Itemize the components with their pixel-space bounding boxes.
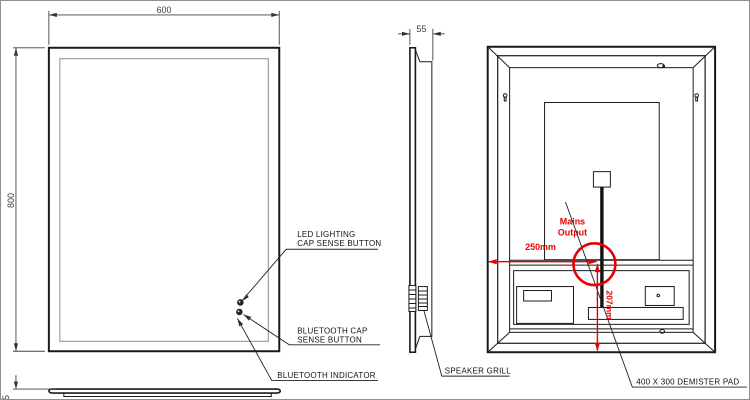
keyhole-hanger-left [503, 94, 507, 101]
arrowhead [14, 382, 18, 389]
dim-thickness-text: 5 [1, 395, 11, 399]
miter-bottom-right [693, 332, 715, 352]
back-view: 400 X 300 DEMISTER PAD [488, 47, 747, 387]
dim-207mm-text: 207mm [604, 291, 614, 320]
callout-led-lighting: LED LIGHTING CAP SENSE BUTTON [241, 230, 381, 302]
arrowhead-bottom [595, 343, 600, 352]
driver-box [517, 287, 574, 324]
leader-line [241, 249, 378, 301]
miter-top-right [693, 47, 715, 68]
drawing-canvas: 600 800 LED LIGHTING CAP SENSE BUTTON B [0, 0, 750, 400]
dim-depth-text: 55 [416, 24, 426, 34]
driver-box-window [524, 291, 552, 301]
label-led-line2: CAP SENSE BUTTON [297, 239, 381, 248]
arrowhead-right [271, 13, 279, 17]
profile-bar [49, 389, 280, 393]
mains-highlight-circle [573, 243, 615, 285]
button-highlight [238, 310, 240, 312]
label-speaker-grill: SPEAKER GRILL [445, 367, 511, 376]
leader-arrowhead [241, 294, 248, 301]
dim-height-text: 800 [6, 193, 16, 208]
label-bt-line2: SENSE BUTTON [297, 335, 362, 344]
arrowhead-bottom [14, 343, 18, 351]
red-annotations: 250mm 207mm Mains Output [488, 216, 616, 351]
front-view: 600 800 LED LIGHTING CAP SENSE BUTTON B [6, 5, 381, 381]
label-mains-output: Mains Output [558, 216, 587, 237]
arrowhead-left [488, 259, 497, 264]
label-bt-line1: BLUETOOTH CAP [297, 326, 367, 335]
side-view: 55 SPEAKER GRILL [398, 24, 511, 376]
mains-output-line2: Output [558, 227, 587, 237]
arrowhead-right [433, 32, 441, 36]
dimension-width: 600 [49, 5, 279, 45]
leader-line [565, 202, 747, 387]
callout-demister-pad: 400 X 300 DEMISTER PAD [565, 202, 747, 387]
callout-bluetooth-cap: BLUETOOTH CAP SENSE BUTTON [243, 314, 380, 344]
led-ring-outline [60, 59, 268, 342]
mirror-outline [49, 48, 279, 351]
arrowhead-top [595, 263, 600, 272]
arrowhead-top [14, 48, 18, 56]
dim-width-text: 600 [157, 5, 172, 15]
leader-arrowhead [243, 314, 251, 320]
technical-drawing: 600 800 LED LIGHTING CAP SENSE BUTTON B [1, 1, 749, 399]
miter-bottom-left [488, 332, 510, 352]
top-hook [657, 64, 664, 68]
arrowhead-left [49, 13, 57, 17]
dim-250mm-text: 250mm [525, 242, 556, 252]
speaker-grill [409, 286, 427, 312]
label-led-line1: LED LIGHTING [297, 230, 355, 239]
connector-dot [657, 294, 660, 297]
arrowhead-left [402, 32, 410, 36]
bluetooth-cap-sense-button [237, 309, 243, 315]
dimension-thickness: 5 [1, 375, 56, 399]
junction-box [593, 172, 610, 187]
dimension-depth: 55 [398, 24, 445, 61]
bottom-profile-view: 5 [1, 375, 280, 399]
label-demister-pad: 400 X 300 DEMISTER PAD [636, 378, 739, 387]
mains-output-line1: Mains [560, 216, 585, 226]
miter-top-left [488, 47, 510, 68]
label-bt-indicator: BLUETOOTH INDICATOR [277, 371, 376, 380]
dimension-height: 800 [6, 48, 45, 351]
keyhole-hanger-right [695, 94, 699, 101]
terminal-strip [588, 307, 683, 319]
button-highlight [239, 301, 241, 303]
leader-arrowhead [237, 318, 243, 326]
